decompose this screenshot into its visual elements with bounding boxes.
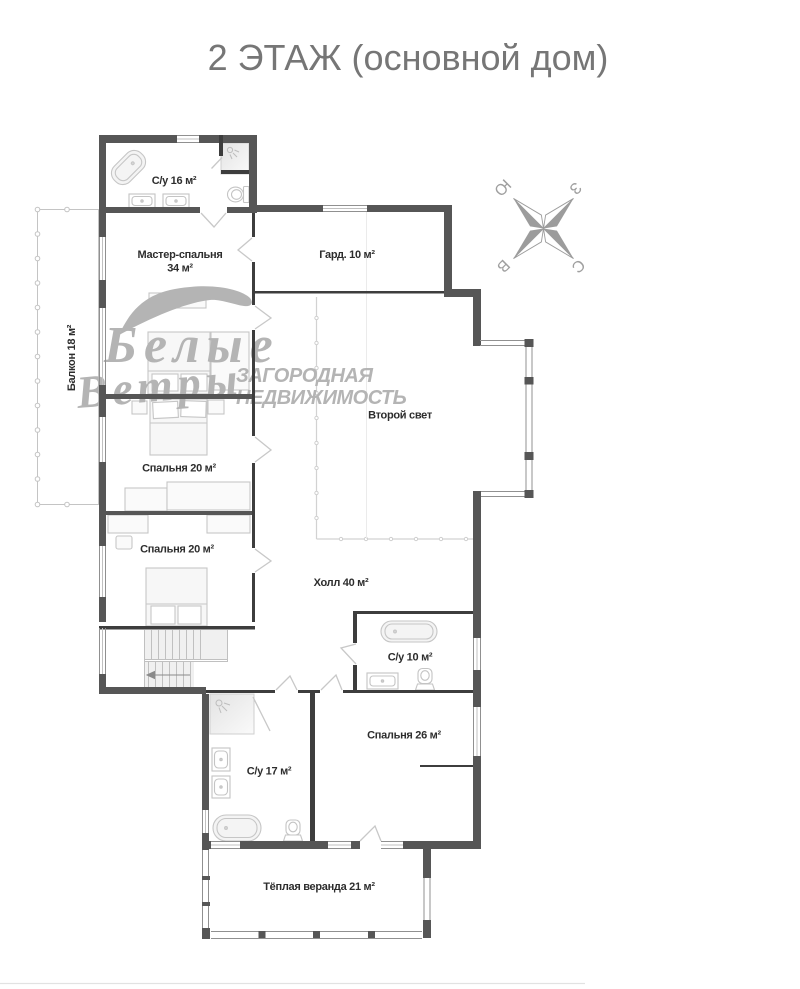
svg-text:С/у 10 м²: С/у 10 м² bbox=[388, 652, 433, 664]
svg-text:Гард. 10 м²: Гард. 10 м² bbox=[319, 249, 375, 261]
svg-text:Спальня 20 м²: Спальня 20 м² bbox=[140, 544, 214, 556]
svg-text:Спальня 26 м²: Спальня 26 м² bbox=[367, 730, 441, 742]
svg-text:2 ЭТАЖ (основной дом): 2 ЭТАЖ (основной дом) bbox=[208, 37, 609, 78]
svg-text:Холл 40 м²: Холл 40 м² bbox=[314, 577, 369, 589]
svg-text:Спальня 20 м²: Спальня 20 м² bbox=[142, 463, 216, 475]
svg-text:Мастер-спальня: Мастер-спальня bbox=[138, 249, 223, 261]
svg-text:НЕДВИЖИМОСТЬ: НЕДВИЖИМОСТЬ bbox=[236, 387, 407, 409]
svg-text:34 м²: 34 м² bbox=[167, 263, 193, 275]
svg-text:ЗАГОРОДНАЯ: ЗАГОРОДНАЯ bbox=[236, 365, 373, 387]
svg-text:Балкон 18 м²: Балкон 18 м² bbox=[66, 324, 78, 391]
svg-text:С/у 17 м²: С/у 17 м² bbox=[247, 766, 292, 778]
svg-text:Тёплая веранда 21 м²: Тёплая веранда 21 м² bbox=[263, 881, 375, 893]
svg-text:Второй свет: Второй свет bbox=[368, 410, 433, 422]
svg-text:С/у 16 м²: С/у 16 м² bbox=[152, 175, 197, 187]
